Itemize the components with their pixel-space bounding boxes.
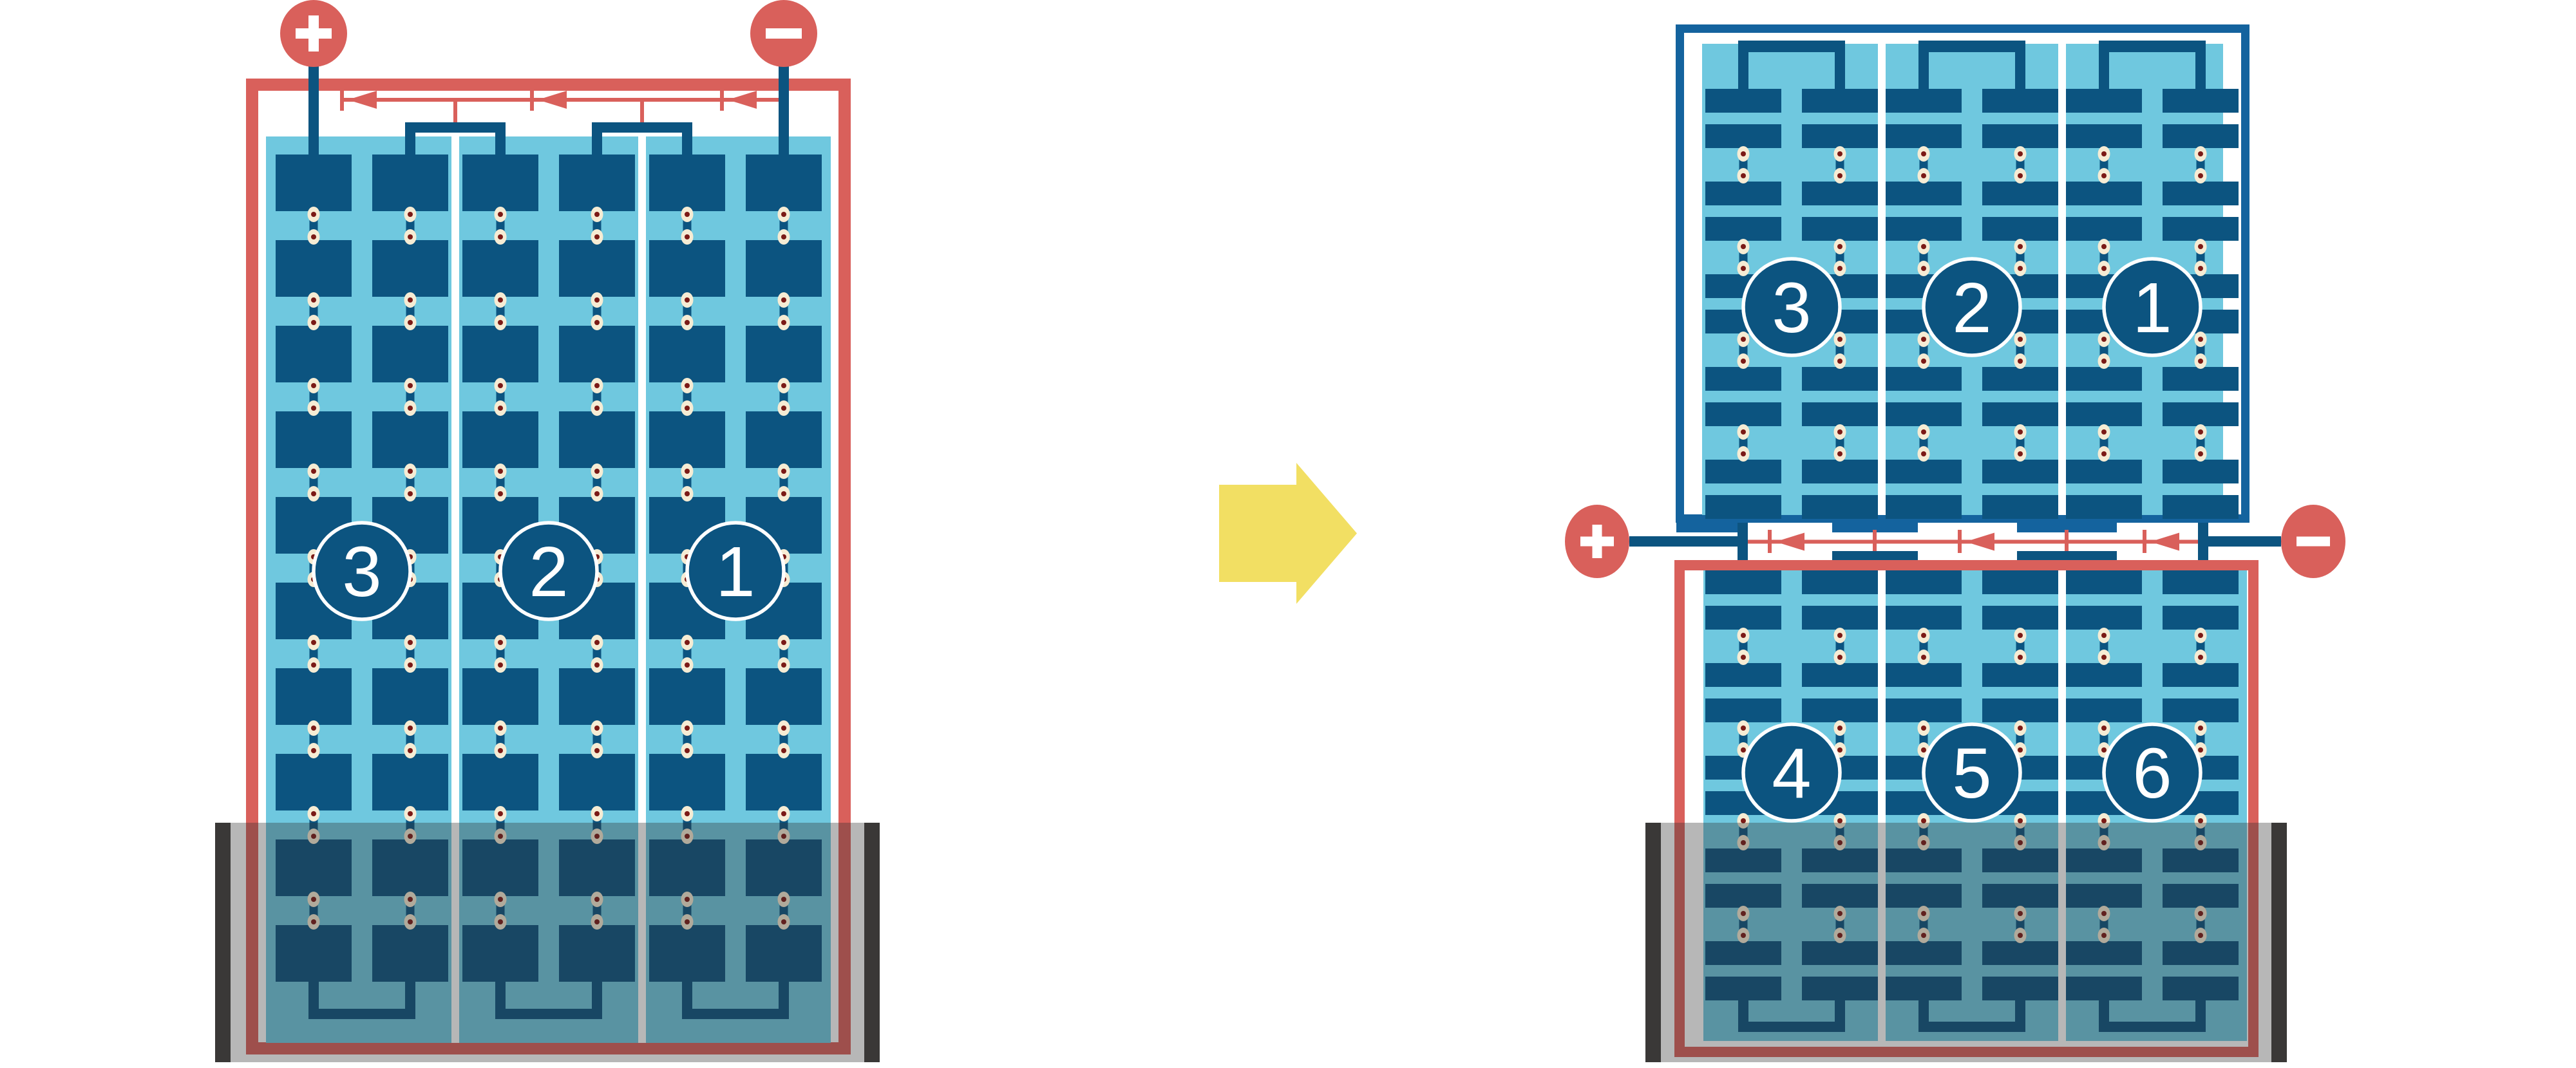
plate [1982,606,2058,630]
flow-drop-line [640,100,644,124]
plate [649,754,725,810]
acid-overlay [215,823,880,1062]
plate [1886,606,1962,630]
plate [2163,217,2239,241]
plate [1802,402,1878,426]
battery-diagram: 321321456 [0,0,2576,1068]
transform-arrow [1219,463,1357,604]
plate [649,240,725,297]
plate [2163,606,2239,630]
plate [649,326,725,382]
plate [1802,570,1878,594]
plate [1705,606,1781,630]
plate [2163,182,2239,205]
plate [462,411,538,468]
flow-tick [1768,530,1772,553]
plate [2163,495,2239,519]
plate [1705,698,1781,722]
plate [1982,495,2058,519]
plate [2066,89,2142,113]
plate [462,155,538,211]
flow-drop-line [453,100,457,124]
cell-number-label: 3 [342,532,381,612]
plate [2163,698,2239,722]
cell-number-label: 3 [1772,268,1811,348]
plate [1705,124,1781,148]
plate [649,668,725,725]
battery-before: 321 [215,0,880,1062]
plate [1886,217,1962,241]
plate [649,411,725,468]
cell-number-badge: 3 [1743,259,1840,355]
plus-symbol-icon [308,15,319,52]
plate [2163,124,2239,148]
plate [2066,217,2142,241]
plate [1802,495,1878,519]
plate [462,326,538,382]
minus-symbol-icon [2297,537,2330,547]
plus-terminal [1565,505,1629,578]
case-wall-right [2271,823,2287,1062]
plate [559,754,635,810]
plate [1802,182,1878,205]
plate [2163,663,2239,687]
battery-diagram-canvas: 321321456 [0,0,2576,1068]
cell-number-badge: 1 [2104,259,2201,355]
plate [1886,698,1962,722]
cell-number-badge: 3 [314,523,410,619]
flow-tick [2143,530,2146,553]
plate [462,240,538,297]
plate [1802,124,1878,148]
plate [2163,570,2239,594]
connector-tab [1676,523,1738,532]
plate [1802,217,1878,241]
cell-number-label: 5 [1952,734,1991,813]
case-wall-left [215,823,231,1062]
plate [746,754,822,810]
plate [2163,402,2239,426]
cell-separator [2058,44,2066,515]
current-arrowhead-icon [2150,533,2179,551]
acid-overlay [1645,823,2287,1062]
cell-number-label: 1 [2132,268,2172,348]
connector-tab [1832,551,1918,560]
battery-case-overlay [215,823,880,1062]
plate [1802,698,1878,722]
plate [1982,182,2058,205]
minus-terminal [750,0,817,67]
plate [1982,460,2058,483]
battery-case-overlay [1645,823,2287,1062]
plate [2066,606,2142,630]
cell-number-badge: 5 [1924,724,2020,821]
cell-number-label: 2 [529,532,568,612]
plate [1886,182,1962,205]
current-arrowhead-icon [348,91,377,109]
plate [649,155,725,211]
plate [1982,698,2058,722]
plate [372,668,448,725]
case-wall-left [1645,823,1661,1062]
plus-symbol-icon [1593,525,1602,558]
connector-tab [2017,551,2117,560]
plate [2066,124,2142,148]
minus-link-post [2198,523,2208,560]
minus-symbol-icon [766,28,802,39]
transform-arrow-icon [1219,463,1357,604]
cell-number-label: 1 [715,532,755,612]
minus-terminal [2281,505,2345,578]
plate [559,155,635,211]
plate [2066,460,2142,483]
plate [276,668,352,725]
cell-number-badge: 1 [687,523,784,619]
plate [559,240,635,297]
current-arrowhead-icon [728,91,757,109]
plate [1705,367,1781,391]
cell-number-label: 2 [1952,268,1991,348]
top-row-battery: 321 [1676,29,2246,561]
plate [2163,89,2239,113]
plate [1886,402,1962,426]
flow-tick [1958,530,1962,553]
plate [1886,460,1962,483]
plate [2066,495,2142,519]
plate [372,155,448,211]
plate [559,668,635,725]
plate [1802,663,1878,687]
current-flow-arrows [340,90,781,124]
plate [1802,89,1878,113]
plate [1802,460,1878,483]
plate [2066,367,2142,391]
battery-after: 321456 [1565,29,2345,1063]
flow-tick [340,90,344,111]
cell-number-badge: 2 [500,523,597,619]
plate [276,754,352,810]
cell-number-label: 6 [2132,734,2172,813]
case-wall-right [864,823,880,1062]
flow-drop-line [2065,530,2069,553]
plus-terminal [280,0,347,67]
flow-drop-line [1873,530,1877,553]
plate [1705,402,1781,426]
plus-terminal-bar [1629,536,1738,547]
plate [746,155,822,211]
current-arrowhead-icon [1776,533,1804,551]
plate [1802,606,1878,630]
cell-number-badge: 2 [1924,259,2020,355]
cell-number-label: 4 [1772,734,1811,813]
plate [276,155,352,211]
plate [1705,182,1781,205]
flow-tick [720,90,724,111]
plate [1705,570,1781,594]
plate [2066,663,2142,687]
cell-number-badge: 6 [2104,724,2201,821]
current-flow-arrows [1748,530,2198,553]
plate [1982,570,2058,594]
plate [559,326,635,382]
plate [1982,663,2058,687]
plate [746,668,822,725]
plate [1982,124,2058,148]
plate [462,754,538,810]
plate [2066,570,2142,594]
plate [276,240,352,297]
plate [1705,217,1781,241]
plate [2066,182,2142,205]
plate [2163,460,2239,483]
plate [1982,402,2058,426]
cell-number-badge: 4 [1743,724,1840,821]
plate [1886,124,1962,148]
plate [2163,367,2239,391]
plate [2066,698,2142,722]
plate [1886,367,1962,391]
plus-link-post [1738,523,1748,560]
plate [372,326,448,382]
plate [1886,663,1962,687]
plate [1802,367,1878,391]
current-arrowhead-icon [538,91,567,109]
current-arrowhead-icon [1965,533,1994,551]
plate [2066,402,2142,426]
plate [1886,495,1962,519]
plate [1705,663,1781,687]
plate [559,411,635,468]
flow-tick [530,90,534,111]
plate [372,754,448,810]
plate [372,411,448,468]
cell-separator [1878,44,1886,515]
plate [1886,570,1962,594]
plate [276,326,352,382]
plate [1886,89,1962,113]
plate [746,326,822,382]
plate [372,240,448,297]
plate [462,668,538,725]
plate [746,240,822,297]
plate [1705,495,1781,519]
plate [1982,217,2058,241]
plate [746,411,822,468]
plate [1705,460,1781,483]
minus-terminal-bar [2208,536,2281,547]
plate [1982,89,2058,113]
plate [276,411,352,468]
plate [1982,367,2058,391]
plate [1705,89,1781,113]
